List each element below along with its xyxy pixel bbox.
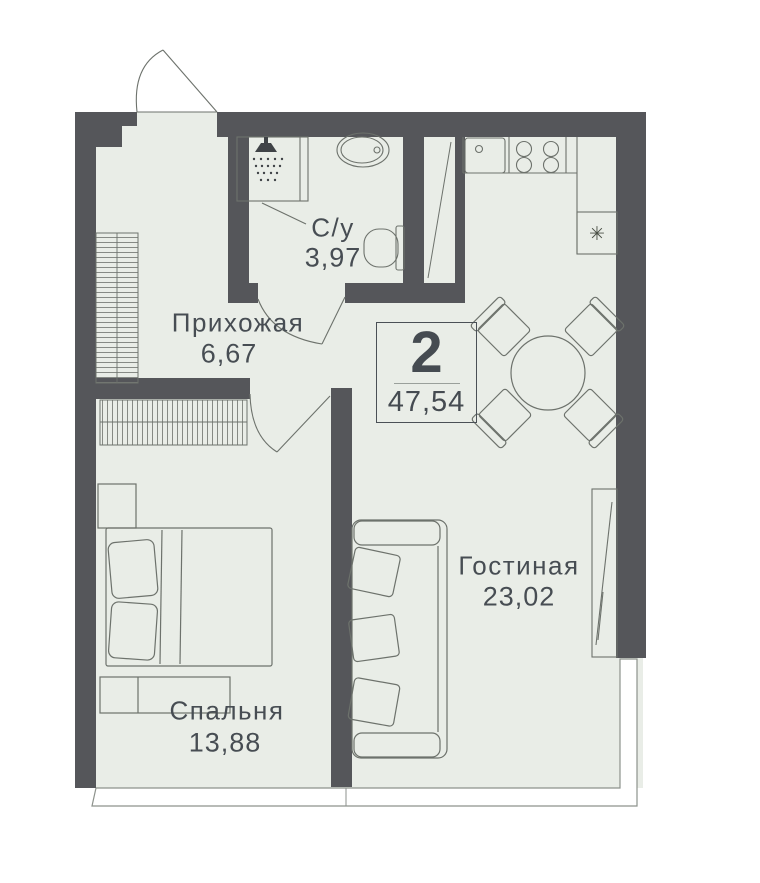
bedroom-wardrobe: [100, 400, 247, 445]
room-label-bathroom: С/у: [311, 213, 355, 244]
apartment-floor: [85, 112, 643, 788]
room-area-living-room: 23,02: [483, 582, 556, 613]
hallway-wardrobe: [96, 233, 138, 383]
floor-plan-svg: ✳: [0, 0, 760, 883]
bathroom-bottom-wall: [228, 283, 258, 303]
rooms-count: 2: [410, 326, 442, 379]
room-area-bathroom: 3,97: [305, 243, 362, 274]
room-area-bedroom: 13,88: [189, 728, 262, 759]
bathroom-bottom-wall: [345, 283, 465, 303]
room-label-living-room: Гостиная: [458, 551, 579, 582]
room-area-hallway: 6,67: [201, 339, 258, 370]
floor-plan: ✳: [0, 0, 760, 883]
info-box: 2 47,54: [376, 322, 477, 423]
room-label-hallway: Прихожая: [172, 308, 304, 339]
info-divider: [394, 383, 460, 384]
room-label-bedroom: Спальня: [170, 696, 285, 727]
total-area: 47,54: [388, 386, 466, 419]
bathroom-left-wall: [228, 137, 249, 303]
entrance-door-swing: [136, 50, 217, 112]
bathroom-right-wall: [403, 137, 424, 303]
fridge-snowflake-icon: ✳: [589, 223, 605, 245]
